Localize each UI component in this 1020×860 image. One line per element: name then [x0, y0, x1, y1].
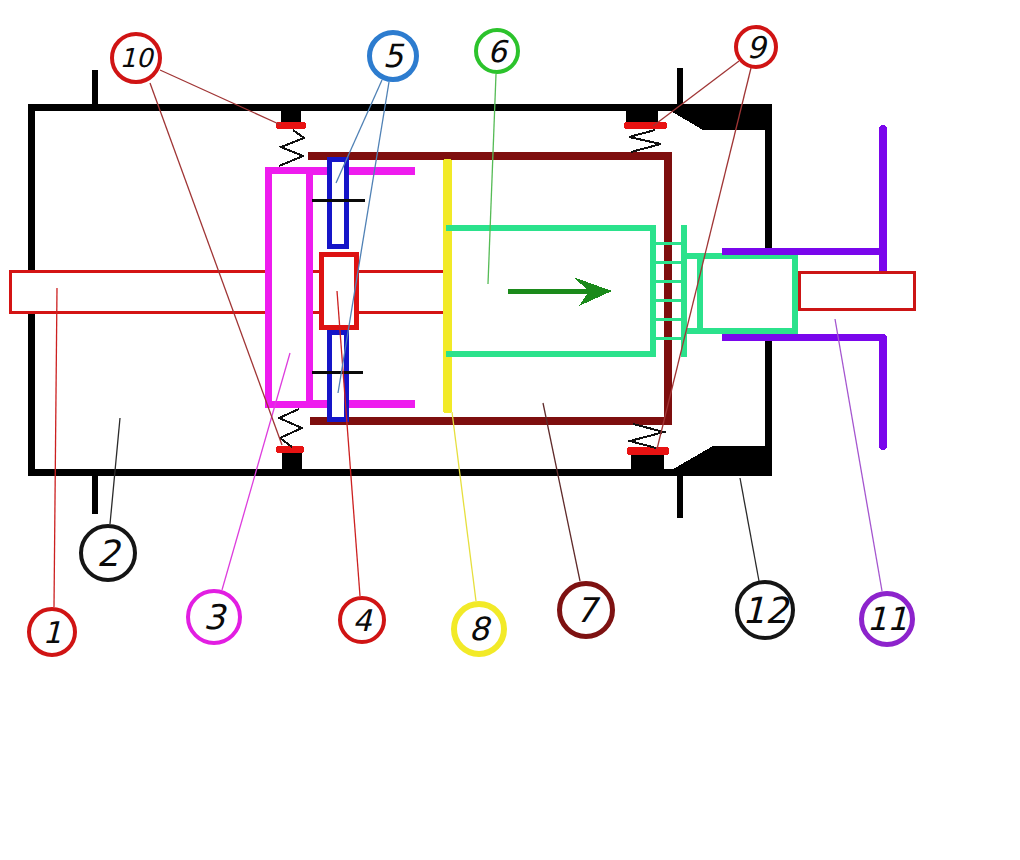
callout-3: 3	[186, 589, 242, 645]
leader-10a	[160, 70, 281, 125]
seal-block-bottom-left	[282, 453, 302, 470]
callout-10: 10	[110, 32, 162, 84]
spring-bottom-right	[630, 424, 664, 448]
yoke-body	[268, 170, 309, 404]
seal-block-bottom-right	[631, 454, 664, 471]
callout-8: 8	[451, 601, 507, 657]
callout-9-number: 9	[746, 30, 765, 65]
housing-right-wall-upper	[765, 111, 772, 250]
piston-ladder-rung	[651, 318, 686, 321]
yoke-arm-bottom	[309, 400, 415, 408]
piston-ladder-rung	[651, 299, 686, 302]
callout-2: 2	[79, 524, 137, 582]
seal-ring-bottom-left	[276, 446, 304, 453]
mount-tick-bottom-right	[677, 476, 683, 518]
piston-ladder-rung	[651, 280, 686, 283]
piston-bottom-edge	[446, 351, 652, 357]
leader-11	[835, 319, 882, 591]
section-tick-upper	[312, 199, 365, 202]
callout-5: 5	[367, 30, 419, 82]
callout-9: 9	[734, 25, 778, 69]
mount-tick-top-left	[92, 70, 98, 104]
spring-bottom-left	[279, 409, 302, 447]
callout-2-number: 2	[97, 533, 120, 574]
callout-6: 6	[474, 28, 520, 74]
leader-8	[452, 412, 476, 601]
seal-block-top-right	[626, 109, 658, 123]
spring-top-left	[279, 130, 304, 166]
output-rod	[799, 272, 914, 309]
callout-5-number: 5	[383, 37, 403, 75]
piston-top-edge	[446, 225, 652, 231]
callout-12: 12	[735, 580, 795, 640]
callout-8-number: 8	[469, 610, 489, 648]
callout-11: 11	[859, 591, 915, 647]
callout-1-number: 1	[42, 615, 61, 650]
spring-top-right	[629, 130, 661, 152]
leader-1	[54, 288, 57, 607]
purple-guide-bottom	[722, 334, 885, 341]
end-cap-wedge-top	[664, 107, 772, 130]
seal-block-top-left	[281, 109, 301, 123]
purple-flange-upper	[879, 125, 887, 273]
callout-10-number: 10	[119, 43, 152, 73]
callout-7-number: 7	[575, 590, 597, 630]
callout-4: 4	[338, 596, 386, 644]
gland-fill	[697, 253, 798, 334]
left-rod	[10, 271, 445, 312]
seal-ring-top-left	[276, 122, 306, 129]
seal-ring-top-right	[624, 122, 667, 129]
piston-ladder-rung	[651, 261, 686, 264]
callout-3-number: 3	[203, 597, 225, 637]
piston-ladder-rung	[651, 242, 686, 245]
seal-ring-bottom-right	[627, 447, 669, 455]
yellow-disc	[443, 159, 452, 413]
mount-tick-bottom-left	[92, 476, 98, 514]
housing-top-wall	[28, 104, 772, 111]
callout-12-number: 12	[742, 590, 788, 631]
leader-10b	[150, 83, 282, 445]
leader-7	[543, 403, 580, 581]
section-tick-lower	[312, 371, 363, 374]
callout-6-number: 6	[487, 34, 506, 69]
piston-ladder-rung	[651, 337, 686, 340]
guide-plate-upper	[329, 159, 346, 246]
flow-arrow	[508, 277, 612, 306]
end-cap-wedge-bottom	[668, 446, 772, 472]
purple-flange-lower	[879, 334, 887, 450]
callout-7: 7	[557, 581, 615, 639]
paint-canvas: 1 2 3 4 5 6 7 8 9 10 11 12	[0, 0, 1020, 860]
gland-right-edge	[792, 253, 798, 334]
callout-1: 1	[27, 607, 77, 657]
callout-4-number: 4	[352, 603, 371, 638]
callout-11-number: 11	[867, 600, 908, 638]
mount-tick-top-right	[677, 68, 683, 104]
purple-guide-top	[722, 248, 885, 255]
schematic-drawing	[0, 0, 1020, 860]
yoke-arm-top	[309, 167, 415, 175]
leader-12	[740, 478, 759, 581]
